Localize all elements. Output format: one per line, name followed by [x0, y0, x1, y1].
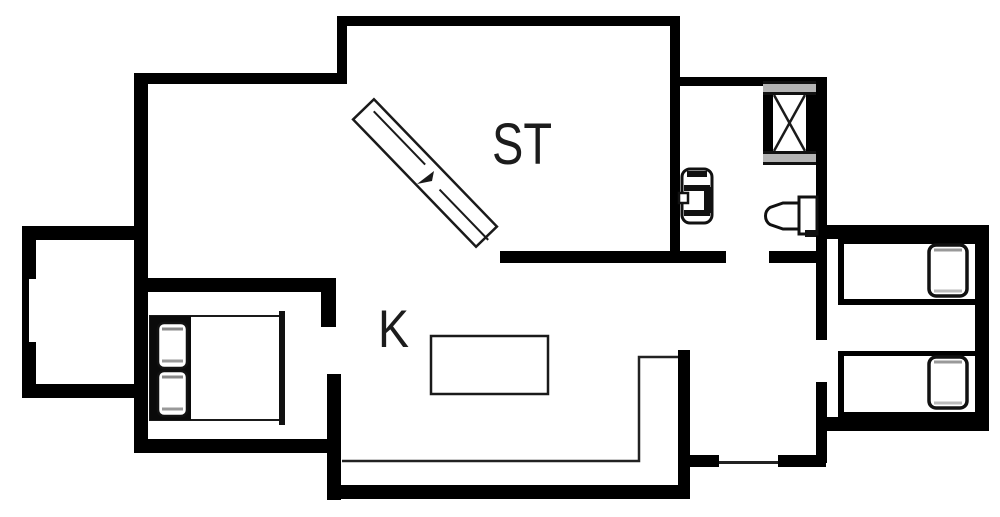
- svg-text:ST: ST: [492, 112, 552, 177]
- svg-text:K: K: [378, 300, 409, 359]
